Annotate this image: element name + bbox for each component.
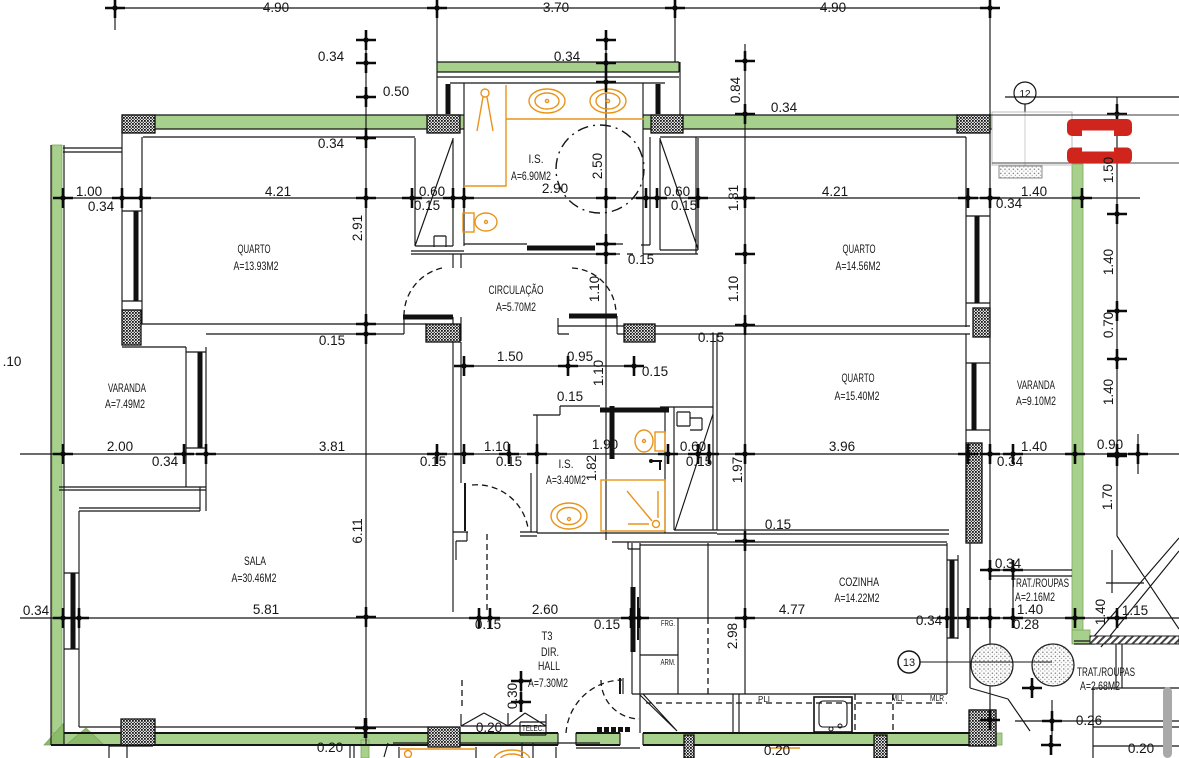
svg-text:0.34: 0.34 — [88, 199, 115, 214]
svg-text:1.82: 1.82 — [584, 455, 599, 481]
svg-text:1.90: 1.90 — [592, 437, 618, 452]
svg-text:1.40: 1.40 — [1021, 184, 1047, 199]
svg-text:0.15: 0.15 — [765, 517, 791, 532]
svg-text:PLI: PLI — [758, 695, 770, 704]
svg-text:1.50: 1.50 — [1101, 157, 1116, 183]
svg-text:A=3.40M2: A=3.40M2 — [546, 473, 586, 487]
svg-text:0.34: 0.34 — [554, 49, 581, 64]
svg-text:0.15: 0.15 — [671, 198, 697, 213]
svg-text:0.90: 0.90 — [1097, 437, 1123, 452]
svg-text:0.15: 0.15 — [686, 454, 712, 469]
svg-text:COZINHA: COZINHA — [839, 575, 879, 589]
svg-text:0.20: 0.20 — [317, 740, 343, 755]
svg-text:0.15: 0.15 — [557, 389, 583, 404]
svg-text:A=14.56M2: A=14.56M2 — [836, 259, 881, 273]
svg-text:A=5.70M2: A=5.70M2 — [496, 300, 536, 314]
svg-text:0.20: 0.20 — [1128, 741, 1154, 756]
svg-text:A=15.40M2: A=15.40M2 — [835, 389, 880, 403]
svg-text:.10: .10 — [3, 354, 22, 369]
svg-text:0.30: 0.30 — [505, 683, 520, 709]
svg-text:1.10: 1.10 — [726, 276, 741, 302]
svg-text:QUARTO: QUARTO — [842, 371, 875, 385]
svg-text:3.70: 3.70 — [543, 0, 569, 15]
svg-text:DIR.: DIR. — [541, 645, 559, 659]
svg-text:HALL: HALL — [538, 659, 560, 673]
svg-text:5.81: 5.81 — [253, 602, 279, 617]
svg-text:2.50: 2.50 — [590, 153, 605, 179]
svg-text:0.20: 0.20 — [476, 720, 502, 735]
svg-text:2.90: 2.90 — [542, 181, 568, 196]
svg-text:1.97: 1.97 — [730, 457, 745, 483]
svg-text:1.40: 1.40 — [1093, 599, 1108, 625]
svg-text:0.50: 0.50 — [383, 84, 409, 99]
svg-text:4.21: 4.21 — [265, 184, 291, 199]
svg-text:0.15: 0.15 — [420, 454, 446, 469]
svg-text:1.70: 1.70 — [1100, 484, 1115, 510]
svg-text:1.40: 1.40 — [1017, 602, 1043, 617]
svg-text:0.34: 0.34 — [23, 603, 50, 618]
svg-text:0.34: 0.34 — [996, 196, 1023, 211]
svg-text:0.60: 0.60 — [419, 184, 445, 199]
svg-text:4.77: 4.77 — [779, 602, 805, 617]
svg-text:4.21: 4.21 — [822, 184, 848, 199]
svg-text:4.90: 4.90 — [820, 0, 846, 15]
svg-text:A=2.16M2: A=2.16M2 — [1015, 590, 1055, 604]
svg-text:0.20: 0.20 — [764, 743, 790, 758]
svg-text:A=13.93M2: A=13.93M2 — [234, 259, 279, 273]
svg-text:A=9.10M2: A=9.10M2 — [1016, 394, 1056, 408]
svg-text:2.60: 2.60 — [532, 602, 558, 617]
svg-text:0.15: 0.15 — [496, 454, 522, 469]
svg-text:I.S.: I.S. — [529, 152, 544, 166]
svg-text:0.34: 0.34 — [916, 613, 943, 628]
svg-text:TELEC.: TELEC. — [522, 724, 544, 733]
svg-text:TRAT./ROUPAS: TRAT./ROUPAS — [1011, 576, 1069, 590]
svg-text:0.15: 0.15 — [414, 198, 440, 213]
svg-text:0.60: 0.60 — [680, 439, 706, 454]
svg-text:0.34: 0.34 — [318, 136, 345, 151]
svg-text:12: 12 — [1019, 89, 1031, 100]
svg-text:1.50: 1.50 — [497, 349, 523, 364]
svg-text:I.S.: I.S. — [559, 457, 574, 471]
svg-text:0.34: 0.34 — [997, 454, 1024, 469]
svg-text:A=30.46M2: A=30.46M2 — [232, 571, 277, 585]
svg-text:1.81: 1.81 — [726, 185, 741, 211]
svg-text:0.15: 0.15 — [319, 333, 345, 348]
svg-text:0.34: 0.34 — [771, 100, 798, 115]
svg-text:0.84: 0.84 — [728, 76, 743, 103]
svg-text:1.40: 1.40 — [1021, 439, 1047, 454]
svg-text:T3: T3 — [542, 629, 553, 643]
svg-text:1.40: 1.40 — [1101, 249, 1116, 275]
svg-text:QUARTO: QUARTO — [238, 242, 271, 256]
svg-text:ARM.: ARM. — [661, 658, 676, 667]
svg-text:0.15: 0.15 — [642, 364, 668, 379]
svg-text:13: 13 — [903, 657, 915, 669]
svg-text:1.10: 1.10 — [591, 360, 606, 386]
svg-text:SALA: SALA — [244, 554, 266, 568]
svg-text:0.26: 0.26 — [1076, 713, 1102, 728]
svg-text:1.00: 1.00 — [76, 184, 102, 199]
svg-text:3.81: 3.81 — [319, 439, 345, 454]
svg-text:A=2.68M2: A=2.68M2 — [1080, 679, 1120, 693]
svg-text:1.40: 1.40 — [1101, 379, 1116, 405]
svg-text:3.96: 3.96 — [829, 439, 855, 454]
svg-text:0.15: 0.15 — [594, 617, 620, 632]
svg-text:MLR: MLR — [930, 694, 944, 703]
svg-text:A=7.30M2: A=7.30M2 — [528, 676, 568, 690]
svg-text:0.15: 0.15 — [698, 330, 724, 345]
svg-text:A=6.90M2: A=6.90M2 — [511, 169, 551, 183]
svg-text:2.00: 2.00 — [107, 439, 133, 454]
svg-text:4.90: 4.90 — [263, 0, 289, 15]
svg-text:0.95: 0.95 — [567, 349, 593, 364]
svg-text:VARANDA: VARANDA — [1017, 378, 1055, 392]
svg-text:0.28: 0.28 — [1013, 617, 1039, 632]
svg-text:2.98: 2.98 — [725, 623, 740, 649]
svg-text:MLL: MLL — [892, 694, 905, 703]
svg-text:TRAT./ROUPAS: TRAT./ROUPAS — [1077, 665, 1135, 679]
svg-text:6.11: 6.11 — [350, 518, 365, 543]
svg-text:1.10: 1.10 — [484, 439, 510, 454]
svg-text:0.34: 0.34 — [995, 556, 1022, 571]
svg-text:QUARTO: QUARTO — [843, 242, 876, 256]
svg-text:0.60: 0.60 — [664, 184, 690, 199]
svg-text:FRG.: FRG. — [661, 619, 675, 628]
svg-text:0.34: 0.34 — [152, 454, 179, 469]
svg-text:0.70: 0.70 — [1101, 312, 1116, 338]
svg-text:A=14.22M2: A=14.22M2 — [835, 591, 880, 605]
svg-text:A=7.49M2: A=7.49M2 — [105, 397, 145, 411]
svg-text:1.10: 1.10 — [587, 276, 602, 302]
svg-text:0.15: 0.15 — [628, 252, 654, 267]
svg-text:VARANDA: VARANDA — [108, 381, 146, 395]
svg-text:1.15: 1.15 — [1122, 603, 1148, 618]
svg-text:0.34: 0.34 — [318, 49, 345, 64]
svg-text:CIRCULAÇÃO: CIRCULAÇÃO — [489, 283, 544, 297]
svg-text:2.91: 2.91 — [350, 215, 365, 241]
svg-text:0.15: 0.15 — [475, 617, 501, 632]
